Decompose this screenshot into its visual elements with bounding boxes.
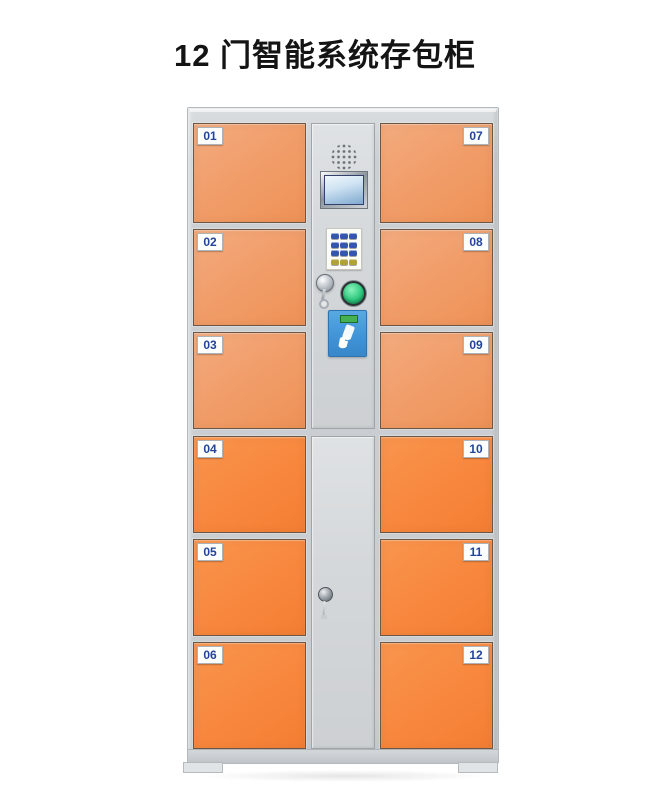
door-number-label: 08 (463, 233, 489, 251)
confirm-button (341, 281, 366, 306)
keypad-function-key (340, 259, 348, 265)
page-title: 12 门智能系统存包柜 (0, 30, 650, 75)
locker-door-10: 10 (380, 436, 493, 533)
locker-door-11: 11 (380, 539, 493, 636)
door-number-label: 06 (197, 646, 223, 664)
inserted-key (322, 601, 325, 616)
keypad-key (331, 250, 339, 256)
inserted-key-bow (319, 299, 329, 309)
locker-door-05: 05 (193, 539, 306, 636)
keypad-key (331, 233, 339, 239)
lcd-screen (324, 175, 364, 205)
door-number-label: 10 (463, 440, 489, 458)
door-number-label: 09 (463, 336, 489, 354)
locker-door-01: 01 (193, 123, 306, 223)
keypad (326, 228, 362, 270)
locker-door-08: 08 (380, 229, 493, 326)
keypad-key (340, 242, 348, 248)
speaker-grille-icon (330, 143, 358, 171)
door-number-label: 04 (197, 440, 223, 458)
keypad-key (349, 242, 357, 248)
keypad-key (331, 242, 339, 248)
keypad-key (340, 250, 348, 256)
control-panel (311, 123, 375, 429)
door-number-label: 12 (463, 646, 489, 664)
door-number-label: 05 (197, 543, 223, 561)
door-number-label: 11 (463, 543, 489, 561)
locker-door-03: 03 (193, 332, 306, 429)
keypad-key (349, 233, 357, 239)
card-reader (328, 310, 367, 357)
key-lock (318, 587, 333, 602)
locker-door-12: 12 (380, 642, 493, 749)
hand-swipe-card-icon (335, 324, 359, 352)
keypad-key (349, 250, 357, 256)
door-number-label: 03 (197, 336, 223, 354)
locker-door-04: 04 (193, 436, 306, 533)
lcd-display (320, 171, 368, 209)
center-service-door (311, 436, 375, 749)
locker-door-09: 09 (380, 332, 493, 429)
door-number-label: 02 (197, 233, 223, 251)
product-image: 12 门智能系统存包柜 01 02 03 04 05 06 07 08 09 (0, 0, 650, 790)
card-reader-screen (340, 315, 358, 323)
keypad-key (340, 233, 348, 239)
keypad-function-key (349, 259, 357, 265)
locker-door-02: 02 (193, 229, 306, 326)
door-number-label: 07 (463, 127, 489, 145)
locker-cabinet: 01 02 03 04 05 06 07 08 09 10 11 (187, 107, 499, 764)
locker-door-06: 06 (193, 642, 306, 749)
locker-door-07: 07 (380, 123, 493, 223)
cabinet-base (188, 749, 498, 763)
inserted-key-tip (321, 615, 327, 619)
keypad-function-key (331, 259, 339, 265)
ground-shadow (200, 770, 490, 782)
door-number-label: 01 (197, 127, 223, 145)
